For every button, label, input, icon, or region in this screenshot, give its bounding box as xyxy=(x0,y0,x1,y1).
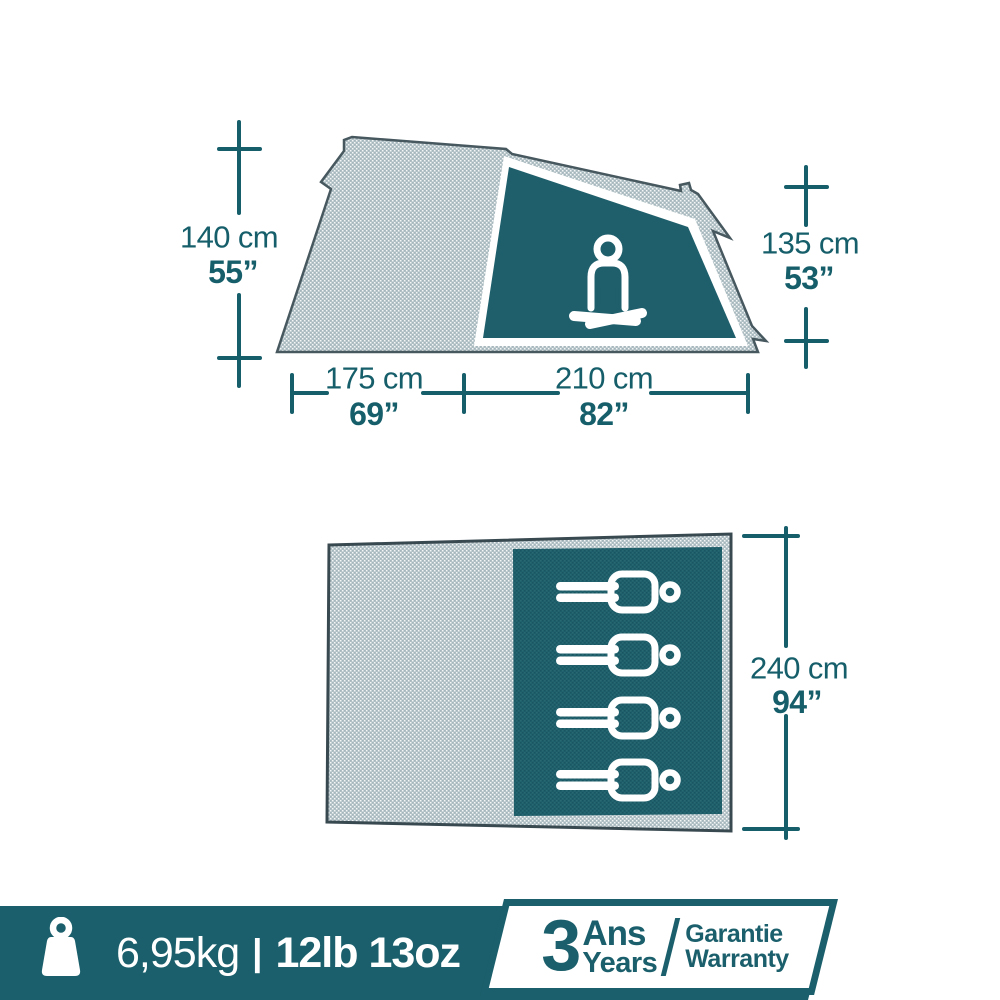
weight-separator: | xyxy=(252,932,262,974)
warranty-unit: Ans Years xyxy=(582,918,657,977)
dim-label-height-left-in: 55” xyxy=(208,256,258,288)
dim-label-width-door-in: 82” xyxy=(579,398,629,430)
warranty-divider xyxy=(661,918,680,976)
warranty-unit-fr: Ans xyxy=(582,918,645,950)
tent-side-view xyxy=(219,122,827,412)
product-dimension-diagram: 140 cm 55” 135 cm 53” 175 cm 69” 210 cm … xyxy=(0,0,1000,1000)
weight-metric: 6,95kg xyxy=(116,929,239,978)
weight-spec: 6,95kg | 12lb 13oz xyxy=(116,906,460,1000)
dim-label-width-front-cm: 175 cm xyxy=(325,363,423,394)
dim-label-width-front-in: 69” xyxy=(349,398,399,430)
warranty-unit-en: Years xyxy=(582,950,657,977)
tent-floor-plan xyxy=(327,528,798,838)
dim-label-height-left-cm: 140 cm xyxy=(180,222,278,253)
warranty-label-en: Warranty xyxy=(685,947,788,973)
dim-label-height-right-in: 53” xyxy=(784,262,834,294)
warranty-years-number: 3 xyxy=(541,917,579,976)
warranty-label-fr: Garantie xyxy=(685,922,782,948)
warranty-label: Garantie Warranty xyxy=(685,922,788,973)
dim-label-width-door-cm: 210 cm xyxy=(555,363,653,394)
dim-label-floor-length-cm: 240 cm xyxy=(750,653,848,684)
dim-label-floor-length-in: 94” xyxy=(772,686,822,718)
tent-diagram-canvas xyxy=(0,0,1000,1000)
warranty-content: 3 Ans Years Garantie Warranty xyxy=(504,899,826,995)
dim-label-height-right-cm: 135 cm xyxy=(761,228,859,259)
weight-icon xyxy=(29,917,93,981)
weight-imperial: 12lb 13oz xyxy=(275,929,460,978)
